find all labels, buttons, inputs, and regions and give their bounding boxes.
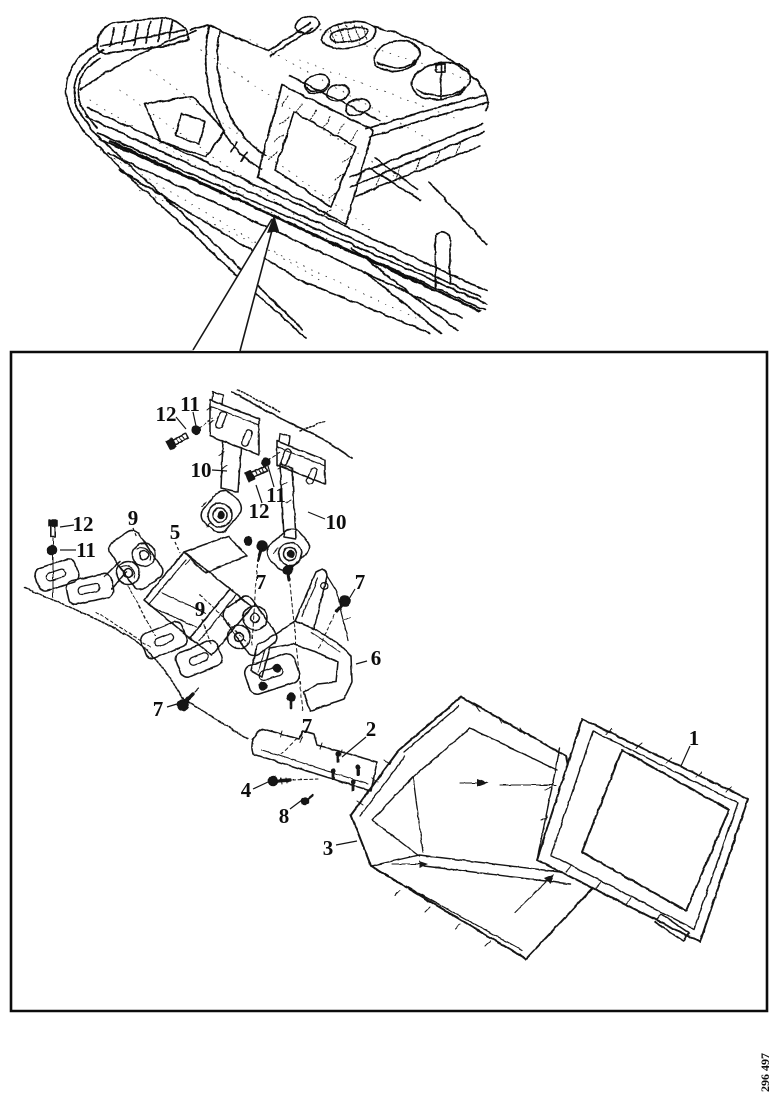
svg-text:4: 4 bbox=[241, 778, 252, 802]
svg-text:12: 12 bbox=[73, 512, 94, 536]
svg-text:7: 7 bbox=[302, 714, 313, 738]
svg-text:7: 7 bbox=[153, 697, 164, 721]
svg-text:10: 10 bbox=[326, 510, 347, 534]
svg-text:11: 11 bbox=[180, 392, 200, 416]
svg-text:7: 7 bbox=[256, 570, 267, 594]
svg-text:11: 11 bbox=[76, 538, 96, 562]
svg-text:10: 10 bbox=[191, 458, 212, 482]
svg-text:9: 9 bbox=[195, 597, 206, 621]
svg-text:6: 6 bbox=[371, 646, 382, 670]
svg-text:12: 12 bbox=[156, 402, 177, 426]
svg-text:296 497: 296 497 bbox=[758, 1053, 772, 1092]
svg-text:2: 2 bbox=[366, 717, 377, 741]
svg-text:3: 3 bbox=[323, 836, 334, 860]
svg-text:9: 9 bbox=[128, 506, 139, 530]
svg-text:12: 12 bbox=[249, 499, 270, 523]
svg-text:7: 7 bbox=[355, 570, 366, 594]
svg-text:8: 8 bbox=[279, 804, 290, 828]
svg-text:5: 5 bbox=[170, 520, 181, 544]
